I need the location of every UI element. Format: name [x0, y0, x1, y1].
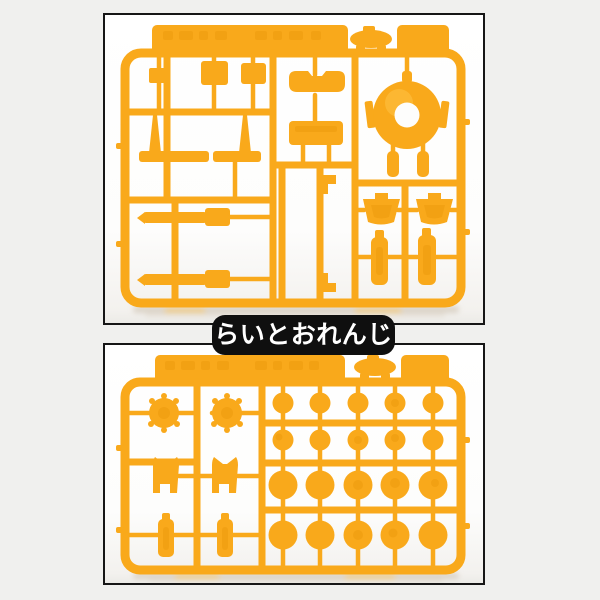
sprue-a-illustration — [105, 15, 483, 323]
ring-part — [364, 55, 449, 177]
sprue-photo-top — [103, 13, 485, 325]
bracket-parts — [137, 208, 273, 288]
round-part-grid — [269, 384, 448, 570]
color-name-label: らいとおれんじ — [212, 315, 395, 355]
bar-part — [289, 121, 343, 165]
blade-parts — [139, 115, 261, 200]
visor-part — [289, 55, 345, 121]
sprue-b-illustration — [105, 345, 483, 583]
color-name-text: らいとおれんじ — [214, 323, 393, 348]
sprue-photo-bottom — [103, 343, 485, 585]
